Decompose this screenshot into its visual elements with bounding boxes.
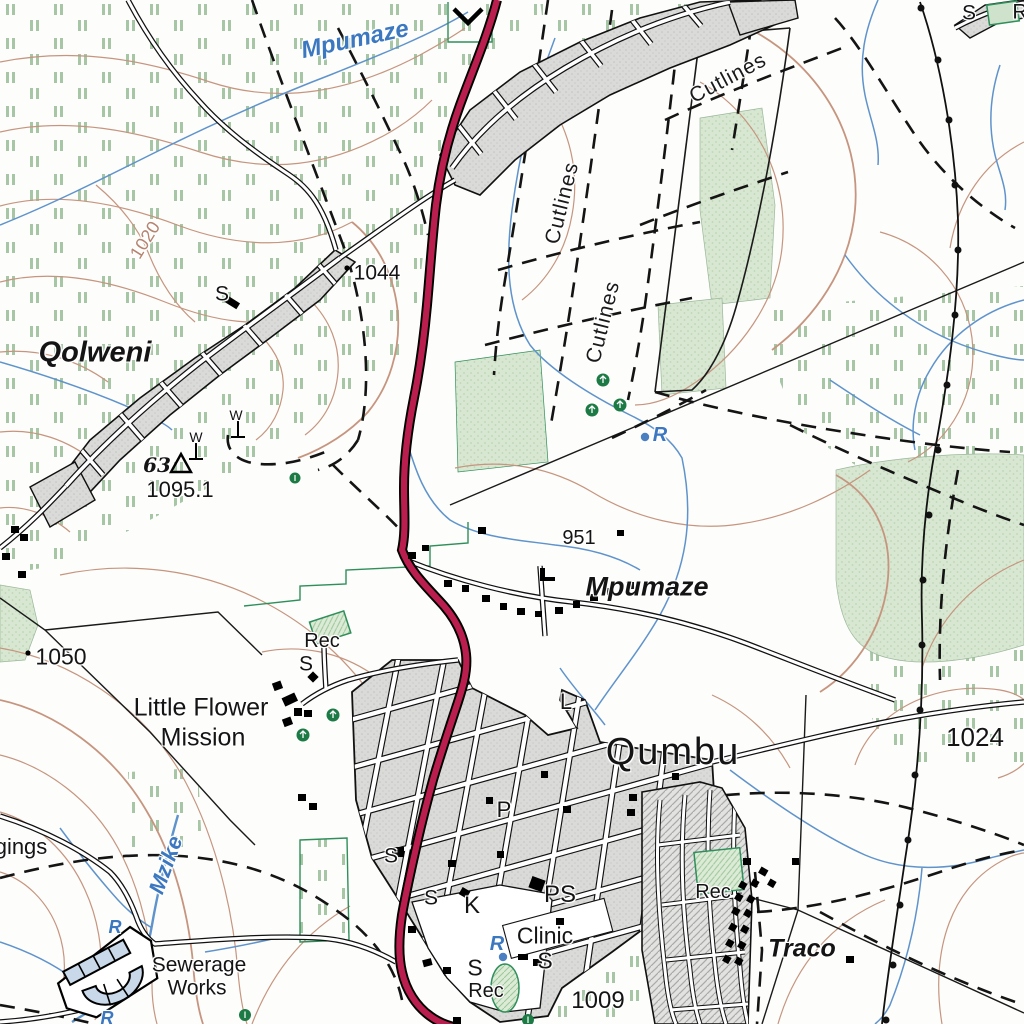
reservoir-dot: [499, 953, 507, 961]
builtup-township: [642, 782, 752, 1024]
spot-height-dot: [344, 265, 349, 270]
rec-ground-traco: [694, 848, 744, 895]
spot-height-dot: [25, 650, 30, 655]
sewerage-works-plant: [47, 921, 171, 1024]
rec-ground-mission: [309, 611, 350, 644]
topographic-map: MpumazeCutlinesCutlinesCutlines10441020Q…: [0, 0, 1024, 1024]
rec-topright: [987, 1, 1019, 25]
reservoir-dot: [641, 433, 649, 441]
map-canvas: [0, 0, 1024, 1024]
l-shaped-building: [540, 568, 555, 581]
rec-ground-qumbu: [491, 964, 519, 1012]
